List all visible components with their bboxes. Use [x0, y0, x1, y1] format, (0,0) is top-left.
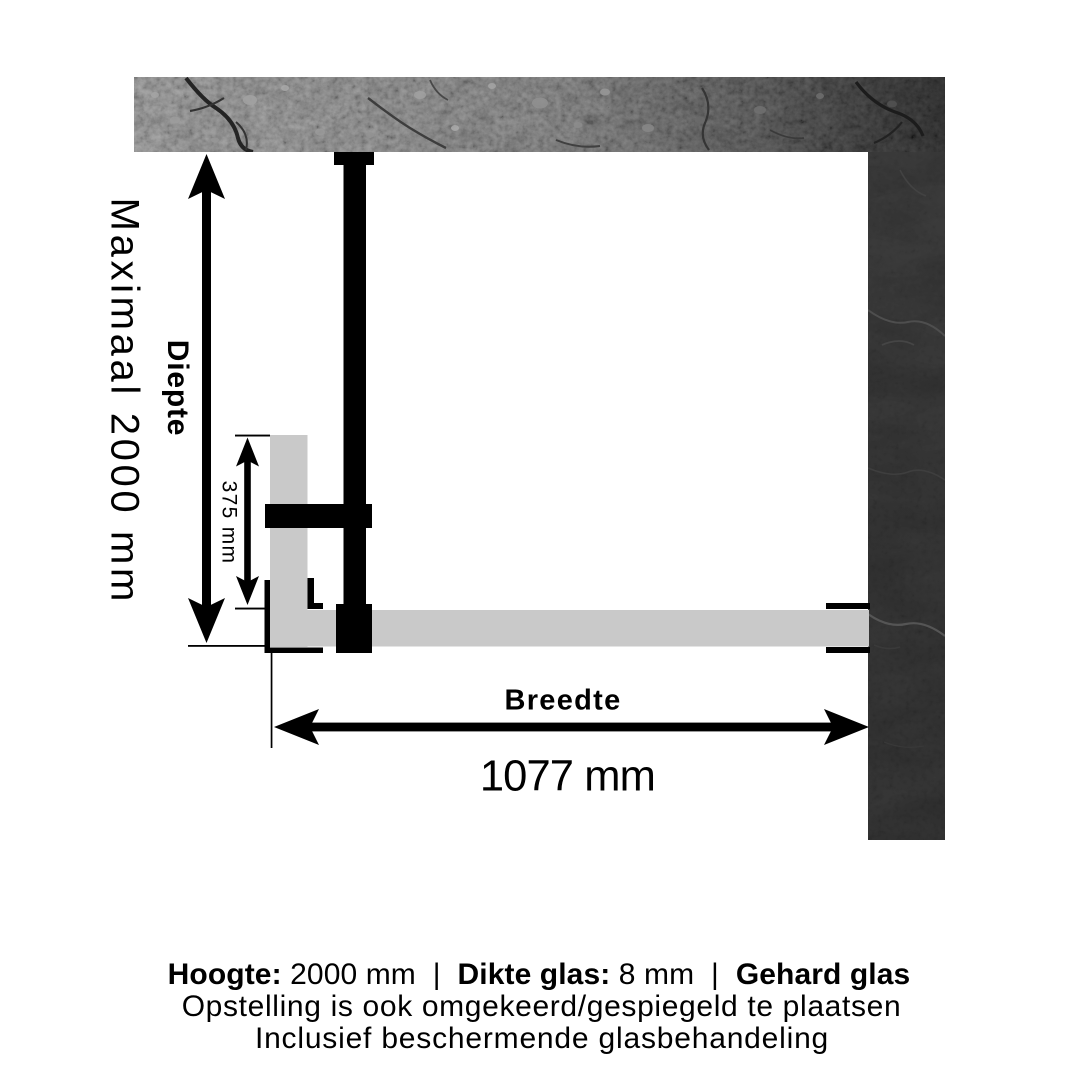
svg-text:Inclusief beschermende glasbeh: Inclusief beschermende glasbehandeling	[255, 1022, 829, 1055]
svg-text:Opstelling is ook omgekeerd/ge: Opstelling is ook omgekeerd/gespiegeld t…	[182, 990, 902, 1023]
svg-text:Breedte: Breedte	[504, 685, 621, 717]
svg-text:Maximaal 2000 mm: Maximaal 2000 mm	[103, 198, 147, 605]
svg-text:375 mm: 375 mm	[218, 481, 241, 565]
svg-text:Hoogte: 2000 mm | Dikte glas: Hoogte: 2000 mm | Dikte glas: 8 mm | Geh…	[168, 958, 911, 991]
svg-text:Diepte: Diepte	[161, 340, 194, 437]
svg-text:1077 mm: 1077 mm	[480, 753, 655, 801]
